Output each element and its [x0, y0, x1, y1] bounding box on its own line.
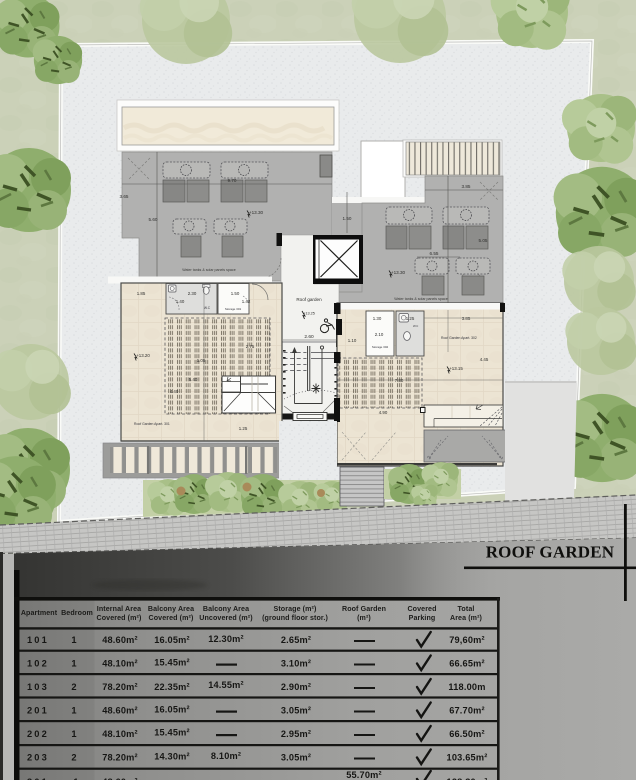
- svg-text:48.10m²: 48.10m²: [102, 659, 138, 669]
- svg-text:2: 2: [71, 753, 78, 763]
- svg-text:(m²): (m²): [357, 614, 371, 622]
- svg-text:78.20m²: 78.20m²: [102, 753, 138, 763]
- svg-text:Roof Garden Apart. 302: Roof Garden Apart. 302: [441, 336, 477, 340]
- svg-text:6.55: 6.55: [430, 251, 439, 256]
- svg-text:(ground floor stor.): (ground floor stor.): [262, 614, 328, 622]
- svg-text:7.80: 7.80: [395, 378, 404, 383]
- svg-text:67.70m²: 67.70m²: [449, 706, 485, 716]
- svg-text:Water tanks & solar panels sp: Water tanks & solar panels space: [182, 268, 235, 272]
- svg-text:Area (m²): Area (m²): [450, 614, 483, 622]
- svg-text:3.85: 3.85: [462, 184, 471, 189]
- svg-text:3.85: 3.85: [462, 316, 471, 321]
- svg-text:ROOF GARDEN: ROOF GARDEN: [486, 543, 615, 562]
- svg-text:Roof Garden Apart. 301: Roof Garden Apart. 301: [134, 422, 170, 426]
- svg-text:48.10m²: 48.10m²: [102, 729, 138, 739]
- svg-text:202: 202: [27, 729, 49, 739]
- svg-text:5.60: 5.60: [149, 217, 158, 222]
- svg-text:79,60m²: 79,60m²: [449, 635, 485, 645]
- svg-text:2.95m²: 2.95m²: [281, 729, 311, 739]
- svg-text:101: 101: [27, 635, 49, 645]
- svg-text:Storage 301: Storage 301: [225, 307, 242, 311]
- svg-text:+13.20: +13.20: [136, 353, 150, 358]
- svg-text:3.05m²: 3.05m²: [281, 706, 311, 716]
- svg-text:Parking: Parking: [409, 614, 436, 622]
- svg-text:103: 103: [27, 682, 49, 692]
- svg-text:66.65m²: 66.65m²: [449, 659, 485, 669]
- svg-text:Storage 302: Storage 302: [372, 345, 389, 349]
- svg-text:48.60m²: 48.60m²: [102, 635, 138, 645]
- svg-text:Covered (m²): Covered (m²): [97, 614, 142, 622]
- svg-text:3.65: 3.65: [120, 194, 129, 199]
- svg-text:5.40: 5.40: [189, 377, 198, 382]
- svg-text:1.25: 1.25: [239, 426, 248, 431]
- svg-text:Uncovered (m²): Uncovered (m²): [199, 614, 253, 622]
- svg-text:4.45: 4.45: [480, 357, 489, 362]
- svg-text:Roof garden: Roof garden: [296, 297, 322, 302]
- svg-text:3.05m²: 3.05m²: [281, 753, 311, 763]
- svg-text:1.40: 1.40: [176, 299, 185, 304]
- svg-text:1: 1: [71, 706, 78, 716]
- svg-text:Storage (m²): Storage (m²): [274, 605, 318, 613]
- svg-text:Total: Total: [458, 605, 475, 613]
- svg-text:15.45m²: 15.45m²: [154, 728, 190, 738]
- svg-text:16.05m²: 16.05m²: [154, 635, 190, 645]
- svg-text:Roof Garden: Roof Garden: [342, 605, 386, 613]
- svg-text:1.10: 1.10: [348, 338, 357, 343]
- svg-text:Bedroom: Bedroom: [61, 609, 93, 617]
- svg-text:2.60: 2.60: [304, 334, 314, 340]
- svg-text:2.65m²: 2.65m²: [281, 635, 311, 645]
- svg-text:1.25: 1.25: [406, 316, 415, 321]
- svg-text:1.50: 1.50: [231, 291, 240, 296]
- svg-text:14.30m²: 14.30m²: [154, 752, 190, 762]
- svg-text:55.70m²: 55.70m²: [346, 770, 382, 780]
- svg-text:Balcony Area: Balcony Area: [203, 605, 249, 613]
- svg-text:4.90: 4.90: [379, 410, 388, 415]
- svg-text:2.90m²: 2.90m²: [281, 682, 311, 692]
- svg-text:118.00m: 118.00m: [448, 682, 485, 692]
- svg-text:Apartment: Apartment: [21, 609, 58, 617]
- svg-text:W.C: W.C: [204, 306, 211, 310]
- svg-text:+13.15: +13.15: [449, 366, 463, 371]
- svg-text:1: 1: [71, 659, 78, 669]
- svg-text:78.20m²: 78.20m²: [102, 682, 138, 692]
- svg-text:14.55m²: 14.55m²: [208, 680, 244, 690]
- svg-text:22.35m²: 22.35m²: [154, 682, 190, 692]
- svg-text:203: 203: [27, 753, 49, 763]
- svg-text:103.65m²: 103.65m²: [447, 753, 488, 763]
- svg-text:1.30: 1.30: [373, 316, 382, 321]
- svg-text:1.05: 1.05: [197, 358, 206, 363]
- svg-text:+13.25: +13.25: [303, 312, 315, 316]
- svg-text:9.70: 9.70: [228, 178, 237, 183]
- svg-text:Internal Area: Internal Area: [97, 605, 141, 613]
- svg-text:Water tanks & solar panels sp: Water tanks & solar panels space: [394, 297, 447, 301]
- svg-text:2.75: 2.75: [246, 344, 255, 349]
- svg-text:201: 201: [27, 706, 49, 716]
- svg-text:12.30m²: 12.30m²: [208, 634, 244, 644]
- svg-text:+13.30: +13.30: [249, 210, 264, 215]
- svg-text:2.30: 2.30: [188, 291, 197, 296]
- svg-text:W.C: W.C: [413, 324, 418, 328]
- svg-text:1: 1: [71, 635, 78, 645]
- svg-text:5.05: 5.05: [479, 238, 488, 243]
- svg-text:1.42: 1.42: [242, 299, 251, 304]
- svg-text:3.10m²: 3.10m²: [281, 659, 311, 669]
- svg-text:1.50: 1.50: [343, 216, 352, 221]
- svg-text:1: 1: [71, 729, 78, 739]
- svg-text:8.10m²: 8.10m²: [211, 751, 241, 761]
- svg-text:2: 2: [71, 682, 78, 692]
- svg-text:Covered: Covered: [407, 605, 436, 613]
- svg-text:+13.30: +13.30: [391, 270, 406, 275]
- svg-text:102: 102: [27, 659, 49, 669]
- svg-text:15.45m²: 15.45m²: [154, 658, 190, 668]
- svg-text:66.50m²: 66.50m²: [449, 729, 485, 739]
- svg-text:Balcony Area: Balcony Area: [148, 605, 194, 613]
- svg-text:1.85: 1.85: [137, 291, 146, 296]
- svg-text:48.60m²: 48.60m²: [102, 706, 138, 716]
- svg-text:Covered (m²): Covered (m²): [149, 614, 194, 622]
- svg-text:16.05m²: 16.05m²: [154, 705, 190, 715]
- svg-text:2.10: 2.10: [375, 332, 384, 337]
- svg-text:4.40: 4.40: [170, 389, 179, 394]
